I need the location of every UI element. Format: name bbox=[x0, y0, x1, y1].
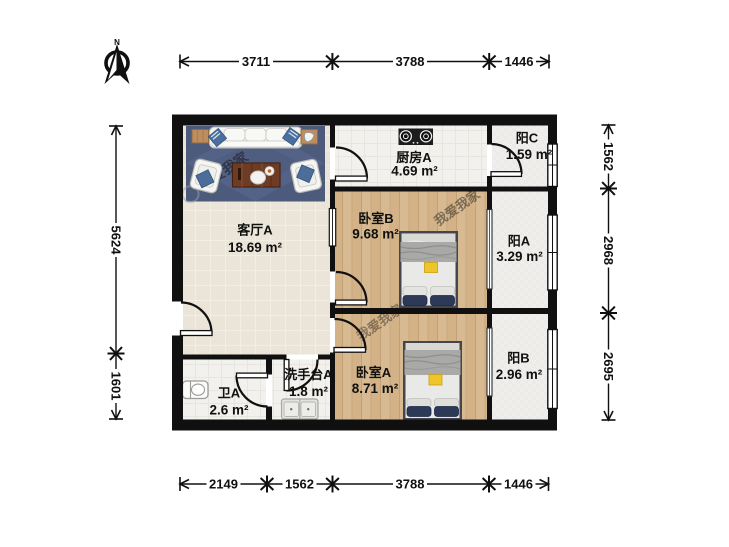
svg-text:阳C: 阳C bbox=[516, 131, 539, 146]
svg-text:2695: 2695 bbox=[601, 352, 616, 381]
svg-text:2968: 2968 bbox=[601, 236, 616, 265]
svg-text:1.59 m²: 1.59 m² bbox=[506, 147, 553, 162]
svg-text:1.8 m²: 1.8 m² bbox=[289, 384, 329, 399]
svg-text:1562: 1562 bbox=[601, 142, 616, 171]
svg-text:卧室B: 卧室B bbox=[358, 211, 393, 226]
svg-text:阳B: 阳B bbox=[507, 351, 529, 366]
svg-text:1446: 1446 bbox=[505, 54, 534, 69]
svg-text:3711: 3711 bbox=[242, 54, 270, 69]
svg-text:1601: 1601 bbox=[109, 372, 124, 401]
svg-text:洗手台A: 洗手台A bbox=[284, 367, 333, 382]
svg-text:3788: 3788 bbox=[396, 54, 425, 69]
svg-text:客厅A: 客厅A bbox=[237, 223, 273, 238]
svg-text:5624: 5624 bbox=[109, 226, 124, 256]
svg-text:卧室A: 卧室A bbox=[356, 365, 392, 380]
svg-text:8.71 m²: 8.71 m² bbox=[352, 381, 399, 396]
svg-text:2.96 m²: 2.96 m² bbox=[496, 367, 543, 382]
svg-text:2149: 2149 bbox=[209, 477, 238, 492]
svg-text:阳A: 阳A bbox=[508, 234, 531, 249]
svg-text:2.6 m²: 2.6 m² bbox=[209, 403, 249, 418]
svg-text:3.29 m²: 3.29 m² bbox=[496, 249, 543, 264]
svg-text:9.68 m²: 9.68 m² bbox=[352, 227, 399, 242]
svg-text:18.69 m²: 18.69 m² bbox=[228, 240, 283, 255]
svg-text:4.69 m²: 4.69 m² bbox=[391, 164, 438, 179]
svg-text:1562: 1562 bbox=[285, 477, 314, 492]
svg-text:卫A: 卫A bbox=[218, 386, 241, 401]
svg-text:1446: 1446 bbox=[504, 477, 533, 492]
svg-text:3788: 3788 bbox=[396, 477, 425, 492]
